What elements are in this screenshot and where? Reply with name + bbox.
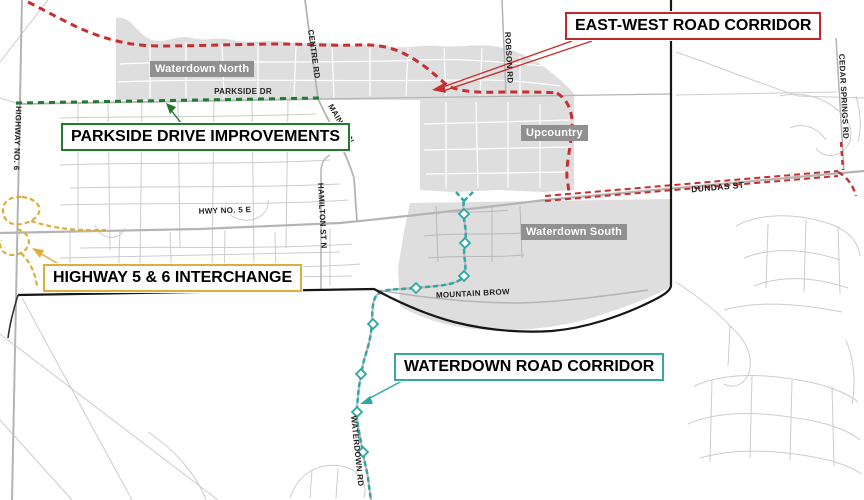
callout-east-west-corridor: EAST-WEST ROAD CORRIDOR bbox=[565, 12, 821, 40]
area-chip-waterdown-north: Waterdown North bbox=[150, 61, 254, 77]
map-canvas: PARKSIDE DR HWY NO. 5 E DUNDAS ST MOUNTA… bbox=[0, 0, 864, 500]
map-stage: PARKSIDE DR HWY NO. 5 E DUNDAS ST MOUNTA… bbox=[0, 0, 864, 500]
road-highway-6 bbox=[12, 0, 22, 500]
callout-highway-interchange: HIGHWAY 5 & 6 INTERCHANGE bbox=[43, 264, 302, 292]
highway-arrow-icon bbox=[32, 248, 44, 258]
label-parkside-dr: PARKSIDE DR bbox=[214, 87, 272, 96]
area-chip-upcountry: Upcountry bbox=[521, 125, 588, 141]
label-hamilton-st-n: HAMILTON ST N bbox=[316, 183, 328, 249]
callout-waterdown-corridor: WATERDOWN ROAD CORRIDOR bbox=[394, 353, 664, 381]
label-highway-no-6: HIGHWAY NO. 6 bbox=[12, 106, 23, 171]
urban-area-upcountry bbox=[420, 96, 574, 192]
label-hwy-no-5-e: HWY NO. 5 E bbox=[199, 205, 252, 216]
area-chip-waterdown-south: Waterdown South bbox=[521, 224, 627, 240]
callout-parkside-improvements: PARKSIDE DRIVE IMPROVEMENTS bbox=[61, 123, 350, 151]
waterdown-leader bbox=[366, 381, 402, 400]
parkside-arrow-icon bbox=[166, 103, 176, 114]
